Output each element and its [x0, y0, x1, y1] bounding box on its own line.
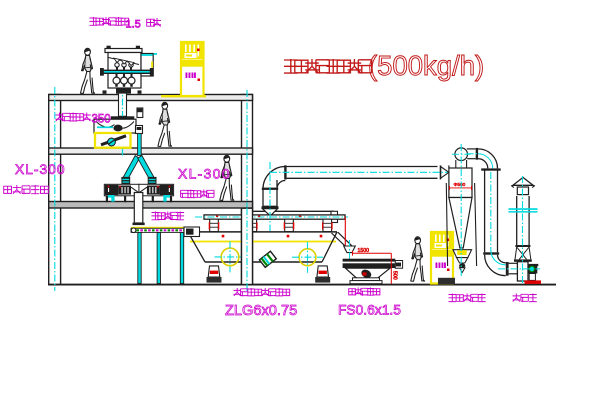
svg-text:350: 350 — [92, 114, 111, 126]
svg-text:Φ500: Φ500 — [454, 182, 466, 188]
svg-text:XL-300: XL-300 — [178, 167, 231, 182]
svg-text:ZLG6x0.75: ZLG6x0.75 — [225, 303, 297, 319]
svg-text:1500: 1500 — [358, 248, 370, 254]
svg-text:XL-300: XL-300 — [15, 162, 66, 177]
svg-text:(500kg/h): (500kg/h) — [368, 50, 484, 81]
svg-text:500: 500 — [392, 271, 398, 280]
svg-text:1.5: 1.5 — [126, 19, 141, 31]
svg-text:FS0.6x1.5: FS0.6x1.5 — [338, 303, 401, 318]
